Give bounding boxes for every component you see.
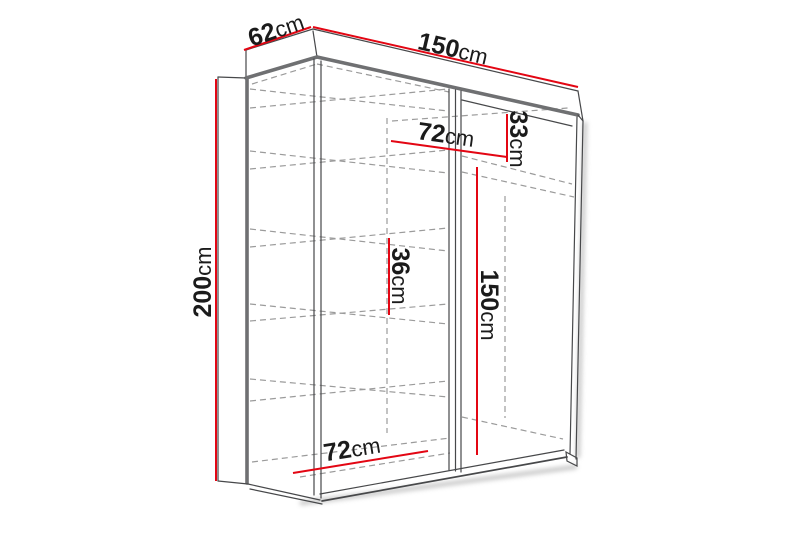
dim-width-top: 150cm	[313, 27, 578, 87]
dim-shelf-width-label: 72cm	[416, 117, 476, 153]
dim-height-left: 200cm	[189, 79, 217, 481]
dim-width-label: 150cm	[415, 27, 491, 70]
dim-top-right-label: 33cm	[504, 110, 532, 167]
dim-bottom-width: 72cm	[293, 431, 428, 473]
shelf-dash	[250, 89, 448, 108]
right-inner-edge	[570, 117, 577, 454]
dim-hanging-height: 150cm	[475, 167, 503, 455]
dim-depth-label: 62cm	[244, 7, 307, 52]
side-strip-bottom-edge	[218, 481, 248, 484]
dim-bottom-width-label: 72cm	[322, 431, 383, 468]
top-apex-connector	[313, 31, 317, 57]
shelf-dash	[250, 381, 448, 401]
shelf-dash	[250, 379, 448, 397]
dim-top-right-section: 33cm	[504, 110, 532, 167]
right-foot	[566, 452, 577, 466]
right-shelf-dash	[462, 172, 574, 197]
dim-shelf-gap: 36cm	[386, 238, 414, 315]
dim-depth-top: 62cm	[244, 7, 311, 52]
shelf-dash	[250, 229, 448, 251]
bottom-rail-bottom	[322, 457, 567, 501]
shelf-dash	[250, 304, 448, 324]
diagram-canvas: 62cm 150cm 200cm 72cm 33cm 36cm 150cm	[0, 0, 800, 533]
bottom-left-foot-edge	[250, 489, 322, 504]
shelf-dash	[250, 151, 448, 173]
shelf-dash	[250, 150, 448, 169]
dim-shelf-gap-label: 36cm	[386, 247, 414, 304]
shelf-dash	[250, 228, 448, 247]
inner-top-edge	[317, 57, 578, 115]
wardrobe-dimension-diagram: 62cm 150cm 200cm 72cm 33cm 36cm 150cm	[0, 0, 800, 533]
shelf-dash	[250, 304, 448, 321]
dim-height-label: 200cm	[189, 246, 217, 317]
inner-edge-dash	[317, 64, 449, 92]
shelf-dash	[250, 89, 448, 111]
bottom-left-diagonal	[248, 484, 320, 500]
side-strip-top-edge	[218, 77, 246, 78]
dim-hanging-label: 150cm	[475, 269, 503, 340]
